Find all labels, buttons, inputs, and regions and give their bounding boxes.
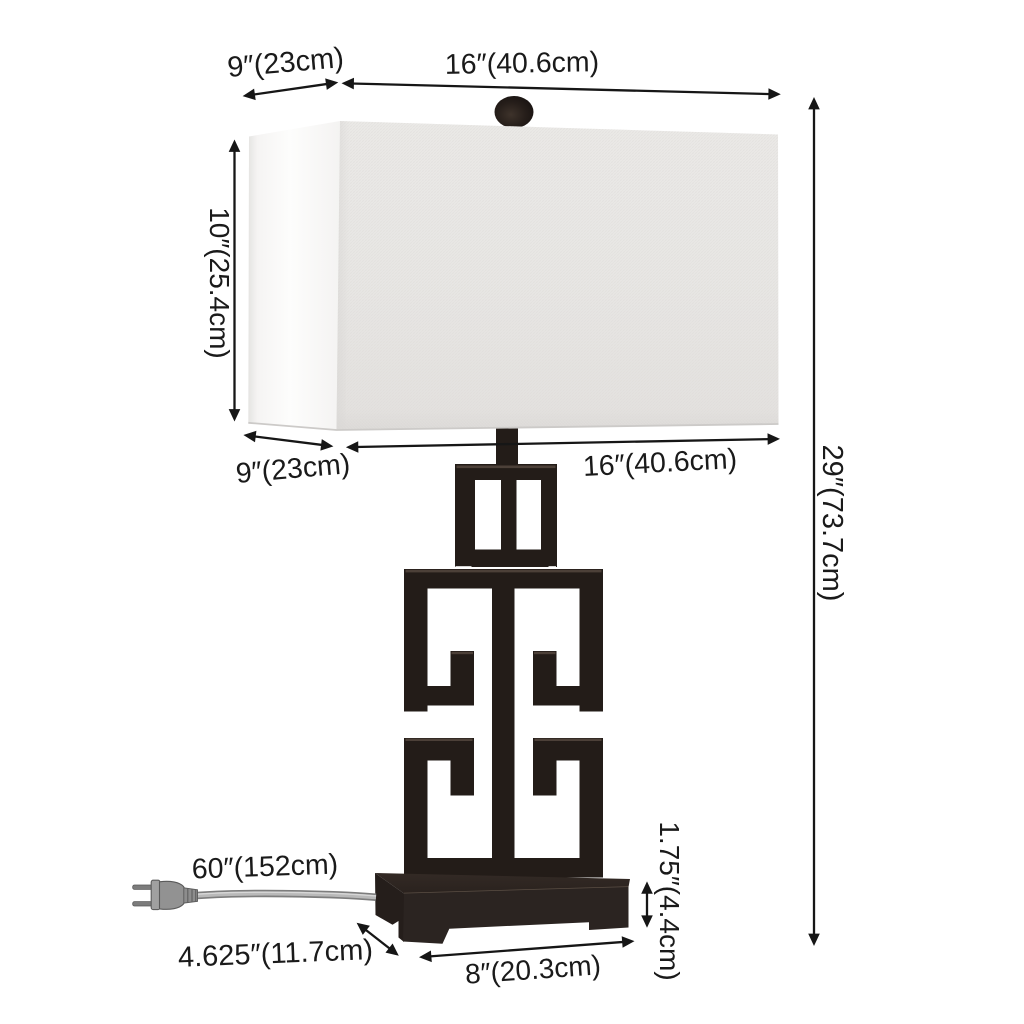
svg-text:16″(40.6cm): 16″(40.6cm) [445,46,600,81]
svg-text:29″(73.7cm): 29″(73.7cm) [816,445,848,602]
svg-text:10″(25.4cm): 10″(25.4cm) [204,207,235,359]
svg-text:1.75″(4.4cm): 1.75″(4.4cm) [654,821,685,980]
svg-text:60″(152cm): 60″(152cm) [191,848,338,885]
